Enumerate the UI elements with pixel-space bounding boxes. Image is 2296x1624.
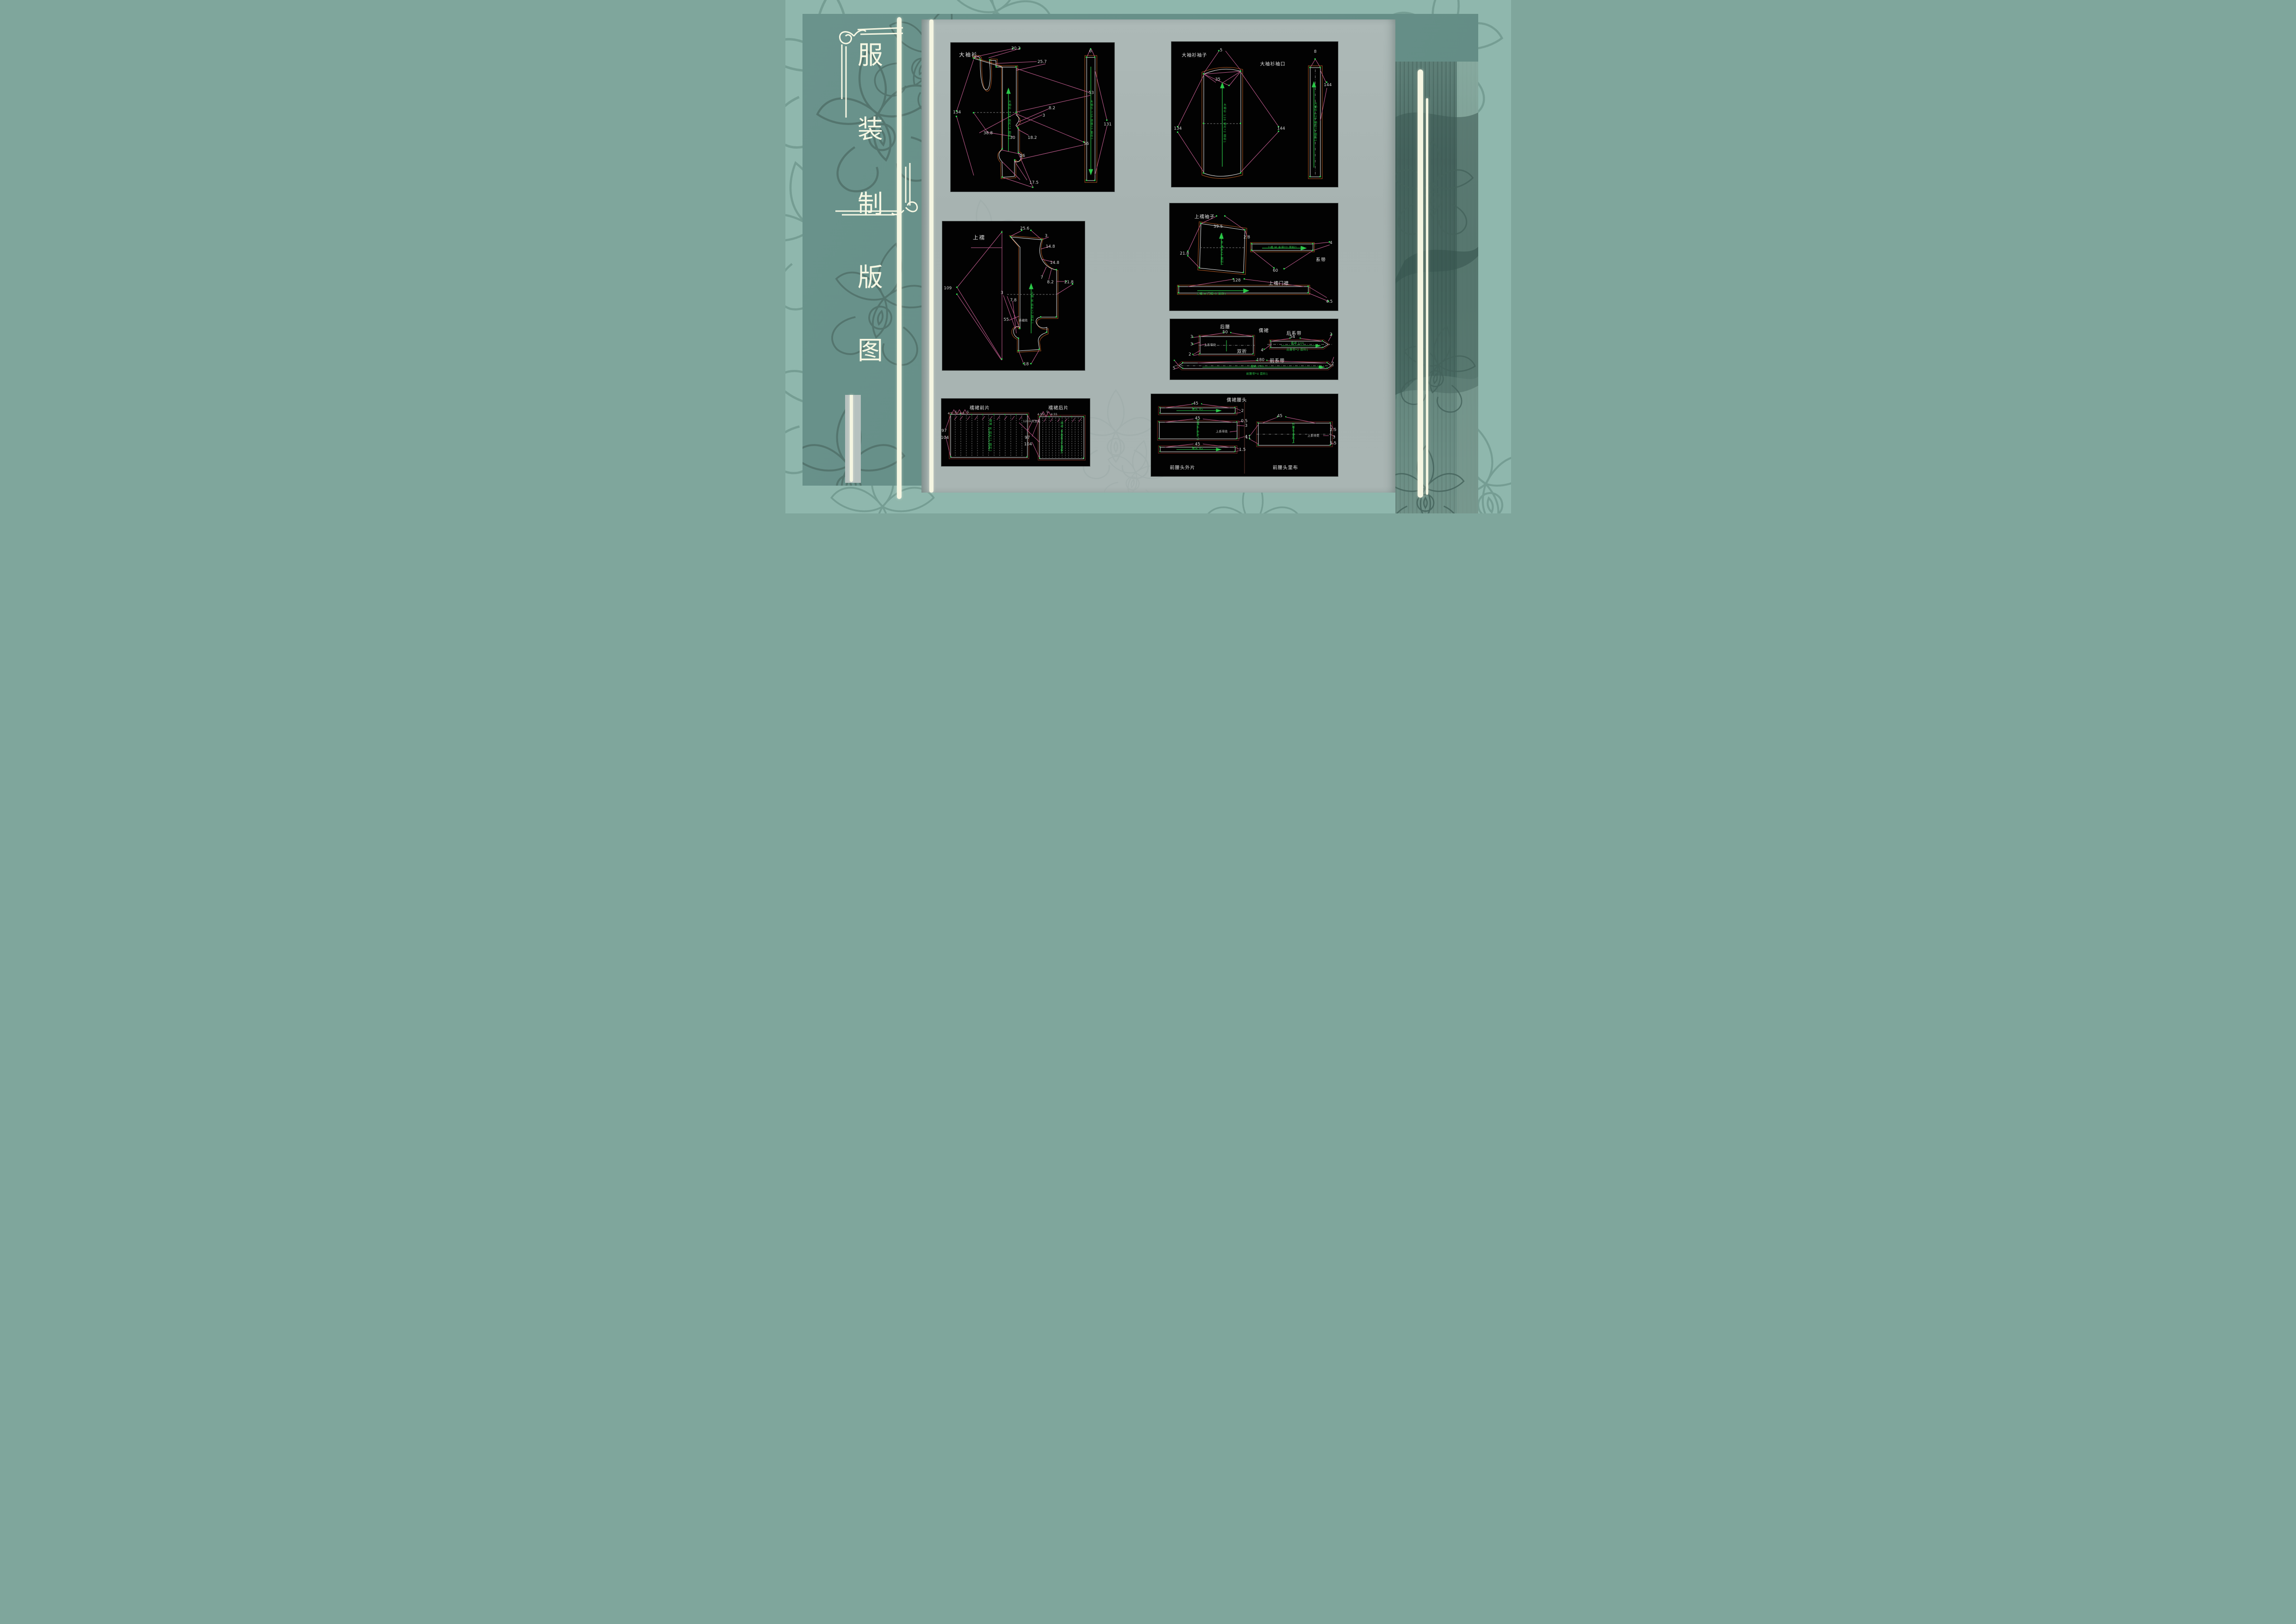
dimension-label: 38.8	[983, 131, 993, 136]
dimension-label: 腰头 45	[1192, 446, 1203, 450]
dimension-label: 54	[1290, 335, 1295, 339]
piece-title: 前腰头外片	[1170, 464, 1195, 471]
slide: 服 装 制 版 图	[785, 0, 1511, 513]
dimension-label: 2.5	[1330, 428, 1336, 432]
ribbon-line-right-thin	[1426, 98, 1428, 495]
piece-title: 双折	[1237, 348, 1247, 355]
dimension-label: 7	[1040, 275, 1043, 280]
dimension-label: 0.5	[1241, 419, 1247, 424]
title-char-3: 制	[856, 192, 885, 217]
piece-title: 后腰	[1220, 323, 1230, 330]
dimension-label: 17.5	[1029, 181, 1039, 185]
dimension-label: 50	[1223, 330, 1228, 335]
dimension-label: 5	[967, 410, 969, 414]
dimension-label: 系缝处	[1019, 318, 1028, 322]
dimension-label: 109	[944, 286, 952, 291]
piece-title: 前腰头里布	[1273, 464, 1298, 471]
dimension-label: 1.5	[1239, 448, 1245, 452]
dimension-label: 7.8	[1010, 298, 1016, 303]
cad-diagram-shangru-xiuzi: 上襦袖子39.52.821.84系带60上襦门襟1284.5上襦 M 袖片*2 …	[1170, 203, 1338, 311]
dimension-label: 上系带处	[1307, 433, 1319, 437]
piece-title: 大袖衫袖口	[1260, 60, 1286, 67]
dimension-label: 45	[1193, 401, 1198, 406]
dimension-label: 4	[1261, 348, 1263, 353]
cad-diagram-ruqun-yaodai: 后腰儒裙后系带前系带5033上系带处2双折5424儒裙 120后腰带*2 面料1…	[1170, 319, 1338, 380]
piece-title: 系带	[1316, 256, 1326, 262]
piece-title: 儒裙腰头	[1226, 396, 1247, 403]
piece-title: 大袖衫袖子	[1182, 51, 1207, 58]
dimension-label: 上系带处	[1216, 429, 1228, 433]
dimension-label: 前腰带*4 面料1	[1246, 371, 1268, 375]
dimension-label: 3	[1190, 342, 1193, 347]
cad-diagram-daxiushan-xiuzi: 大袖衫袖子大袖衫袖口5351341448144大袖衫 120 袖片*2 面料1大…	[1171, 42, 1338, 187]
title-char-4: 版	[856, 265, 885, 290]
title-char-2: 装	[856, 117, 885, 142]
dimension-label: 4.5	[959, 412, 964, 415]
dimension-label: 上襦 M 袖片*2 面料1	[1220, 233, 1224, 266]
dimension-label: 14.8	[1046, 244, 1055, 249]
dimension-label: 18	[1023, 362, 1028, 367]
dimension-label: 前腰头 外片*1	[1195, 419, 1200, 441]
title-char-1: 服	[856, 43, 885, 68]
dimension-label: 8.2	[1049, 106, 1055, 111]
piece-title: 前系带	[1269, 357, 1285, 364]
dimension-label: 56	[1084, 142, 1089, 146]
dimension-label: 4	[1330, 241, 1332, 245]
dimension-label: 6	[1089, 49, 1092, 54]
dimension-label: 60	[1273, 269, 1278, 273]
dimension-label: 26	[1020, 154, 1025, 158]
ribbon-line-left-outer	[897, 17, 902, 499]
dimension-label: 大袖衫 120 袖片*2 面料1	[1222, 103, 1226, 143]
dimension-label: 5	[1173, 366, 1176, 371]
dimension-label: 131	[1104, 122, 1112, 127]
dimension-label: 3	[1245, 424, 1248, 428]
dimension-label: 144	[1277, 126, 1285, 131]
dimension-label: 8	[1314, 50, 1317, 54]
dimension-label: 4.55	[1051, 412, 1057, 416]
dimension-label: 97	[941, 429, 946, 433]
dimension-label: 上襦 M 系带*2 面料1	[1267, 245, 1297, 250]
dimension-label: 大袖衫 120 衣片*2 面料1	[1007, 100, 1011, 140]
dimension-label: 5	[1220, 48, 1223, 53]
dimension-label: 儒裙 120	[1251, 364, 1263, 369]
dimension-label: 144	[1324, 83, 1332, 87]
piece-title: 上襦门襟	[1269, 279, 1289, 286]
cad-diagram-daxiushan: 大袖衫20.225.75313438.83018.238.2562617.561…	[951, 43, 1114, 192]
dimension-label: 35	[1215, 77, 1220, 82]
dimension-label: 104	[941, 436, 949, 440]
dimension-label: 2	[1241, 409, 1244, 413]
dimension-label: 4.5	[1326, 300, 1332, 304]
dimension-label: 3	[1333, 435, 1336, 440]
dimension-label: 14.8	[1050, 261, 1059, 265]
dimension-label: 21.8	[1180, 251, 1189, 256]
dimension-label: 2	[1332, 362, 1334, 366]
piece-title: 上襦袖子	[1195, 212, 1215, 219]
dimension-label: 12cm开叉处	[1023, 418, 1040, 423]
dimension-label: 104	[1024, 442, 1032, 447]
dimension-label: 97	[1025, 436, 1030, 440]
dimension-label: 39.5	[1213, 225, 1223, 229]
ribbon-line-right-thick	[1418, 69, 1423, 498]
dimension-label: 大袖衫 120 袖口*2 面料1	[1313, 102, 1317, 142]
dimension-label: 2.8	[1244, 235, 1250, 240]
dimension-label: 20.2	[1011, 46, 1020, 51]
dimension-label: 55	[1003, 318, 1008, 322]
dimension-label: 上系带处	[1204, 342, 1216, 347]
dimension-label: 180	[1257, 358, 1264, 362]
dimension-label: 3	[1001, 291, 1003, 295]
dimension-label: 4.5	[948, 412, 952, 415]
dimension-label: 25.7	[1038, 60, 1047, 64]
dimension-label: 5	[955, 410, 957, 414]
dimension-label: 5.5	[1330, 441, 1336, 446]
dimension-label: 5	[1046, 410, 1048, 414]
cad-diagram-shangru: 上襦25.6314.814.878.221.810937.85518系缝处上襦 …	[942, 221, 1085, 370]
piece-title: 上襦	[973, 234, 985, 241]
dimension-label: 前腰头 里布*1	[1291, 423, 1295, 444]
cad-diagram-ruqun-yaotou: 儒裙腰头前腰头外片前腰头里布452450.53上系带处4451.545112.5…	[1151, 394, 1338, 476]
cad-diagram-ruqun-qunpian: 襦裙前片襦裙后片4.554.554.5554.5512cm开叉处97104971…	[941, 399, 1090, 466]
dimension-label: 4.55	[1037, 412, 1044, 416]
dimension-label: 2	[1330, 332, 1332, 337]
dimension-label: 11	[1245, 435, 1251, 440]
dimension-label: 18.2	[1027, 136, 1037, 140]
piece-title: 儒裙	[1259, 326, 1269, 333]
dimension-label: 8.2	[1047, 280, 1053, 285]
piece-title: 襦裙后片	[1048, 404, 1069, 411]
dimension-label: 45	[1277, 414, 1282, 418]
dimension-label: 后腰带*2 面料1	[1287, 347, 1308, 351]
dimension-label: 3	[1190, 335, 1193, 339]
piece-title: 襦裙前片	[970, 404, 990, 411]
dimension-label: 128	[1233, 278, 1241, 283]
dimension-label: 襦裙 M 前片*1 面料1	[988, 419, 992, 452]
dimension-label: 上襦 M 门襟*2 面料1	[1196, 291, 1226, 295]
dimension-label: 上襦 M 衣片*2 面料1	[1030, 291, 1034, 324]
ribbon-line-left-inner	[929, 19, 933, 493]
ribbon-line-bottom-left	[850, 395, 853, 482]
dimension-label: 134	[953, 110, 961, 115]
dimension-label: 3	[1045, 234, 1047, 238]
dimension-label: 25.6	[1020, 226, 1029, 231]
dimension-label: 腰头 45	[1192, 407, 1203, 411]
dimension-label: 儒裙 120	[1291, 341, 1304, 345]
photo-strip	[1395, 62, 1478, 513]
dimension-label: 53	[1089, 91, 1094, 95]
dimension-label: 134	[1174, 126, 1182, 131]
dimension-label: 大袖衫 120 领缘*2 面料1	[1089, 100, 1093, 140]
piece-title: 大袖衫	[959, 51, 978, 58]
title-char-5: 图	[856, 338, 885, 363]
dimension-label: 3	[1042, 113, 1045, 118]
photo-light-edge	[1457, 62, 1478, 513]
dimension-label: 2	[1188, 352, 1191, 357]
dimension-label: 襦裙 M 后片*1 面料1	[1059, 421, 1064, 454]
ribbon-backing-bottom-left	[845, 395, 861, 483]
dimension-label: 21.8	[1064, 280, 1074, 285]
